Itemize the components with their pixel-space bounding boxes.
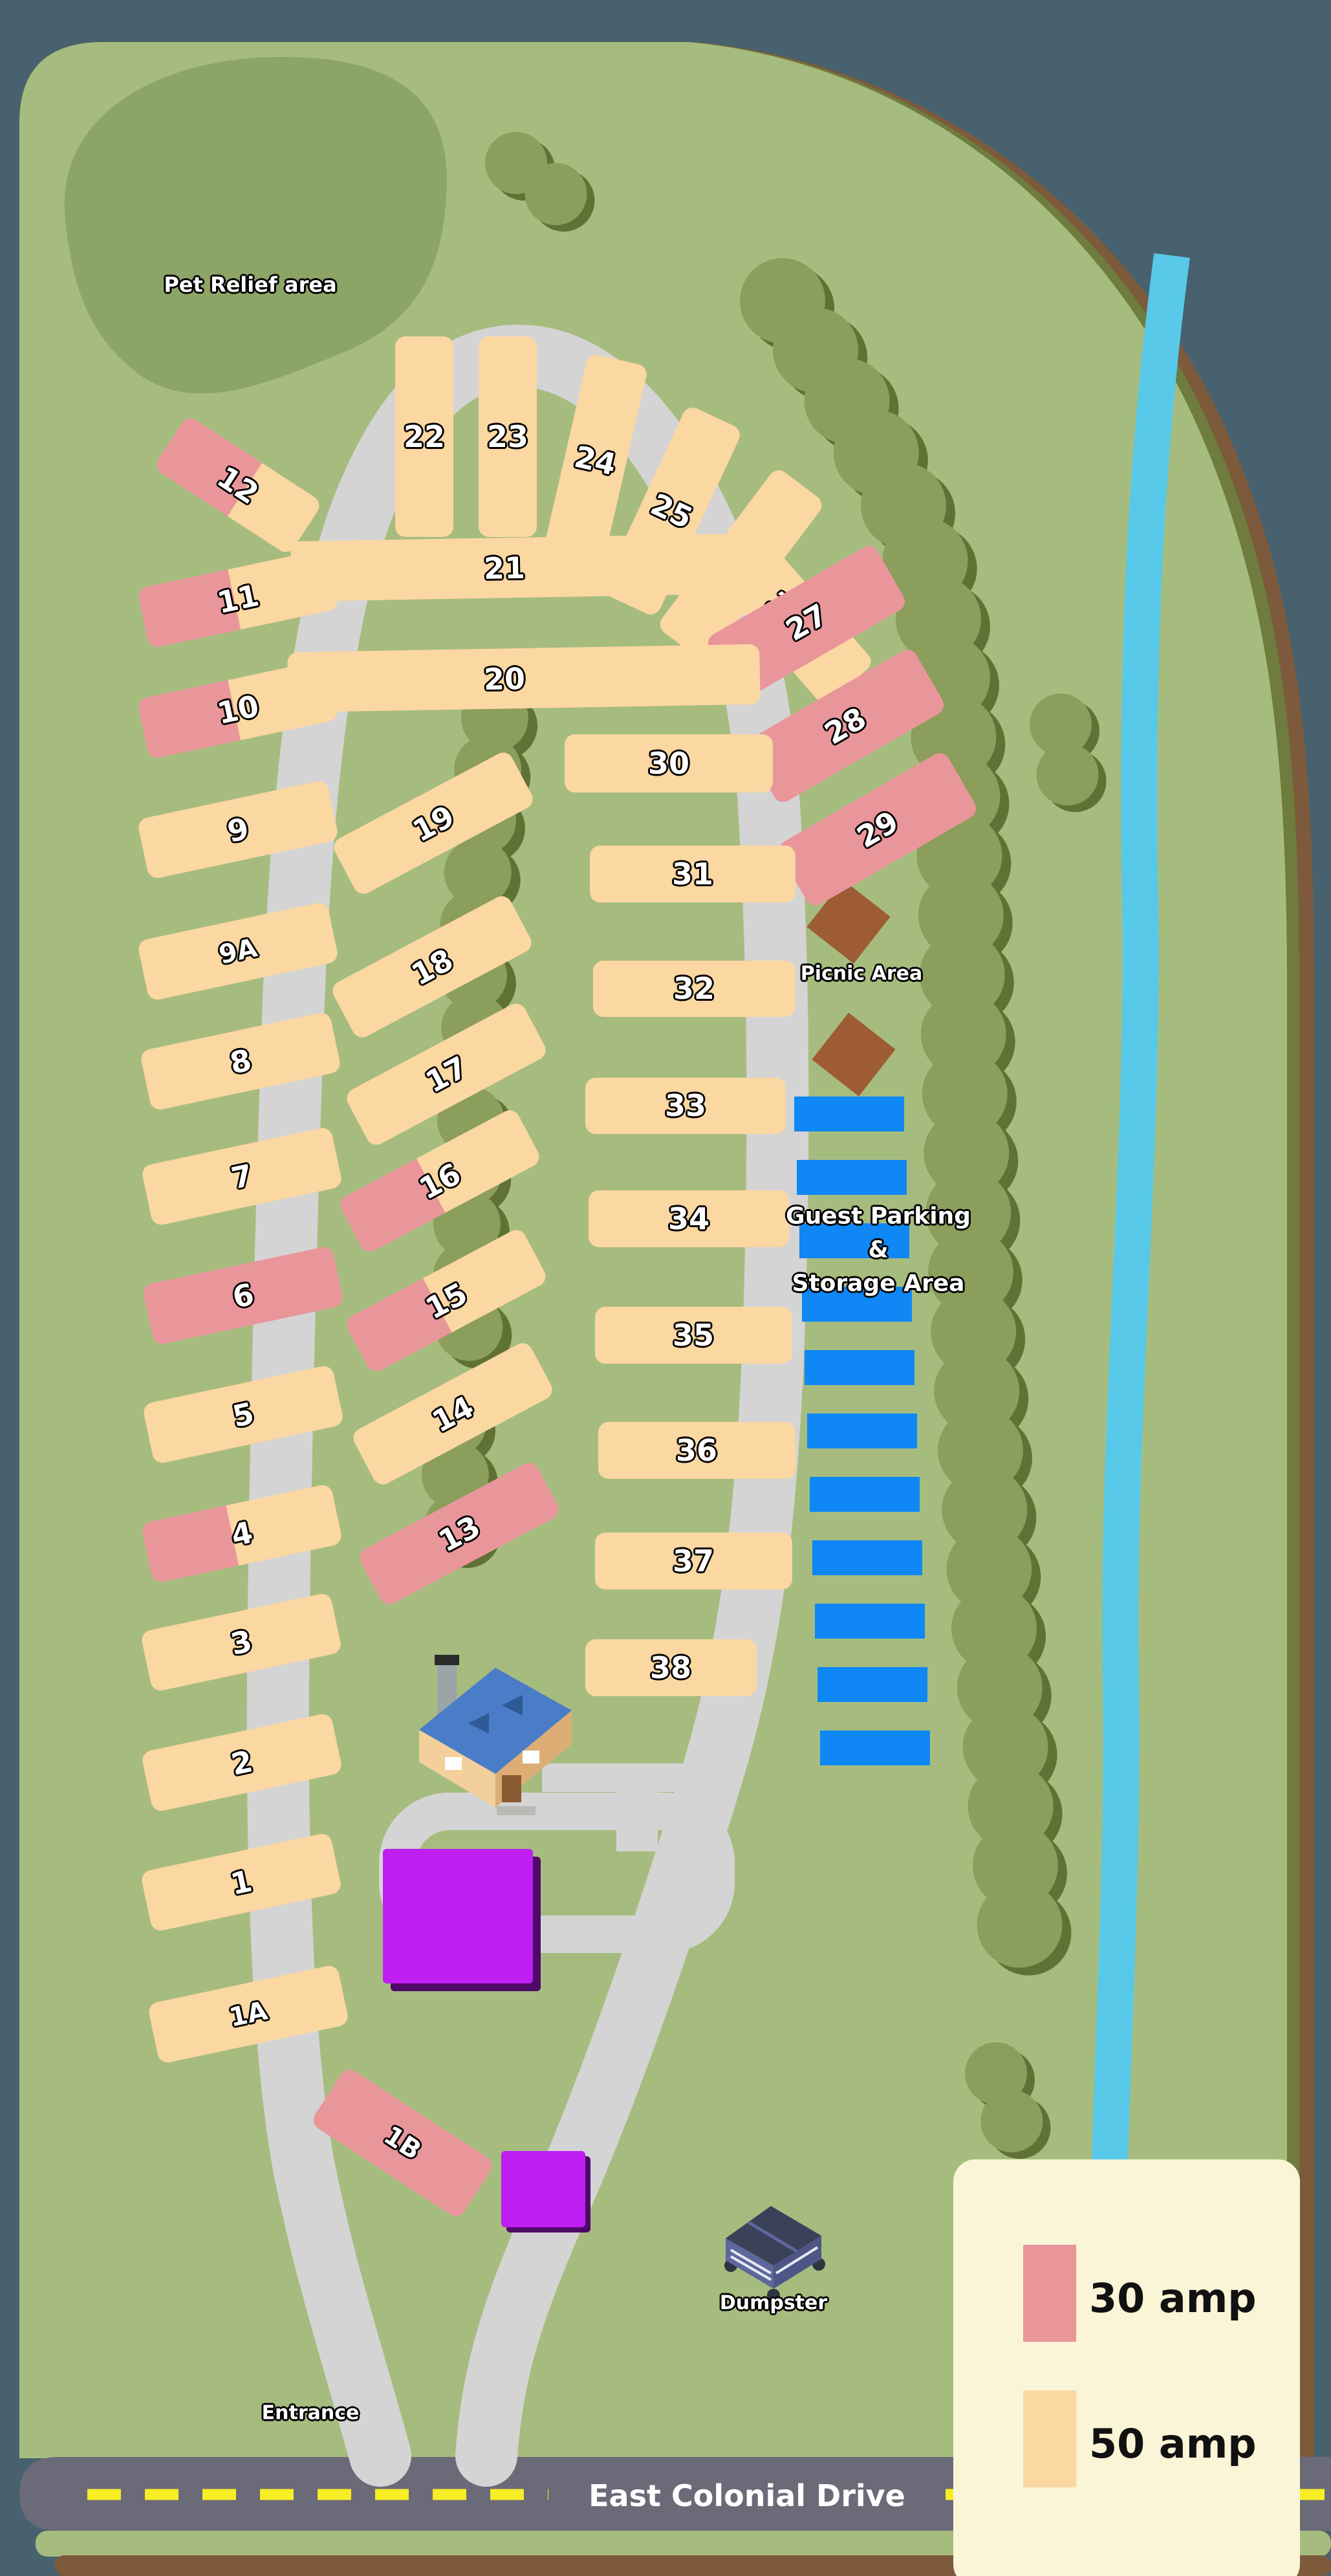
guest-parking-label-2: &: [868, 1237, 888, 1263]
road-name-label: East Colonial Drive: [589, 2478, 905, 2513]
site-33: 33: [585, 1078, 786, 1134]
site-34: 34: [589, 1190, 789, 1247]
office-building: [383, 1849, 541, 1991]
dumpster-label: Dumpster: [720, 2292, 827, 2315]
guest-parking-space: [805, 1350, 914, 1385]
site-36: 36: [598, 1422, 795, 1479]
guest-parking-space: [797, 1160, 907, 1195]
site-35: 35: [595, 1307, 792, 1364]
site-22: 22: [395, 336, 453, 537]
guest-parking-space: [817, 1667, 927, 1702]
guest-parking-space: [812, 1540, 922, 1575]
site-20: 20: [287, 644, 761, 712]
site-21: 21: [290, 533, 738, 601]
guest-parking-space: [794, 1097, 904, 1131]
campground-map: 2223242525A26272829212030313233343536373…: [0, 0, 1331, 2576]
site-38: 38: [585, 1639, 757, 1696]
legend-label-30amp: 30 amp: [1089, 2275, 1283, 2322]
entrance-label: Entrance: [262, 2402, 360, 2425]
picnic-area-label: Picnic Area: [801, 963, 923, 985]
legend-panel: 30 amp 50 amp: [953, 2159, 1300, 2576]
guest-parking-label-3: Storage Area: [792, 1271, 965, 1297]
site-23: 23: [479, 336, 537, 537]
legend-swatch-50amp: [1023, 2390, 1076, 2487]
guest-parking-label-1: Guest Parking: [786, 1203, 971, 1230]
guest-parking-space: [810, 1477, 920, 1512]
legend-swatch-30amp: [1023, 2245, 1076, 2342]
site-32: 32: [593, 961, 795, 1017]
small-building: [501, 2151, 590, 2232]
pet-relief-label: Pet Relief area: [164, 272, 336, 297]
guest-parking-space: [807, 1414, 917, 1448]
guest-parking-space: [820, 1730, 930, 1765]
site-31: 31: [590, 846, 795, 902]
guest-parking-space: [815, 1604, 925, 1639]
site-30: 30: [565, 734, 773, 792]
legend-label-50amp: 50 amp: [1089, 2420, 1283, 2467]
site-37: 37: [595, 1533, 792, 1589]
